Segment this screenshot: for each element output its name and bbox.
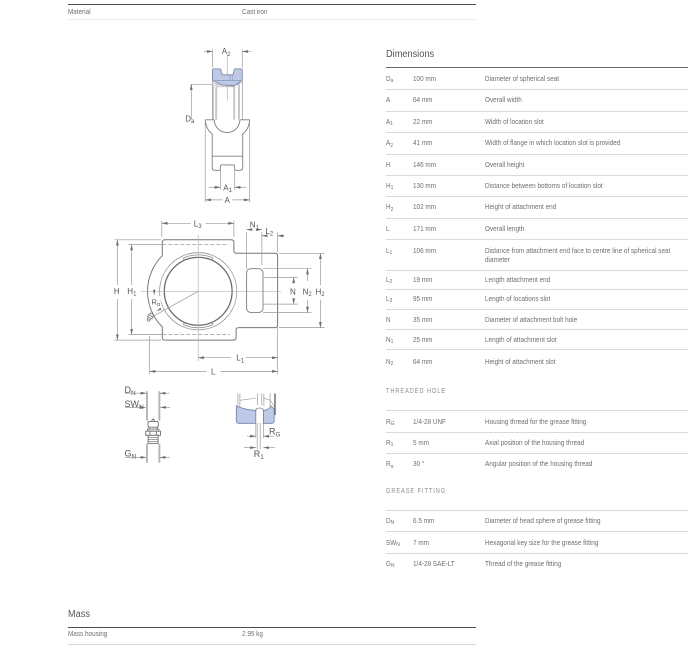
svg-text:L2: L2: [265, 227, 273, 238]
svg-text:RG: RG: [269, 427, 281, 439]
svg-text:N1: N1: [250, 221, 260, 232]
svg-text:L: L: [211, 367, 216, 376]
svg-text:H: H: [114, 287, 120, 296]
svg-text:A2: A2: [222, 47, 231, 58]
svg-text:H1: H1: [127, 287, 137, 298]
svg-text:DN: DN: [125, 385, 137, 397]
svg-text:R1: R1: [254, 449, 264, 461]
svg-text:A: A: [225, 196, 231, 205]
svg-text:A1: A1: [223, 183, 232, 194]
svg-text:N2: N2: [303, 287, 313, 298]
svg-text:Da: Da: [185, 114, 195, 125]
svg-text:L3: L3: [194, 219, 202, 230]
svg-text:N: N: [290, 287, 296, 296]
svg-text:L1: L1: [236, 354, 244, 365]
svg-text:H2: H2: [316, 287, 326, 298]
svg-text:SWN: SWN: [125, 399, 145, 411]
svg-text:GN: GN: [125, 448, 137, 460]
